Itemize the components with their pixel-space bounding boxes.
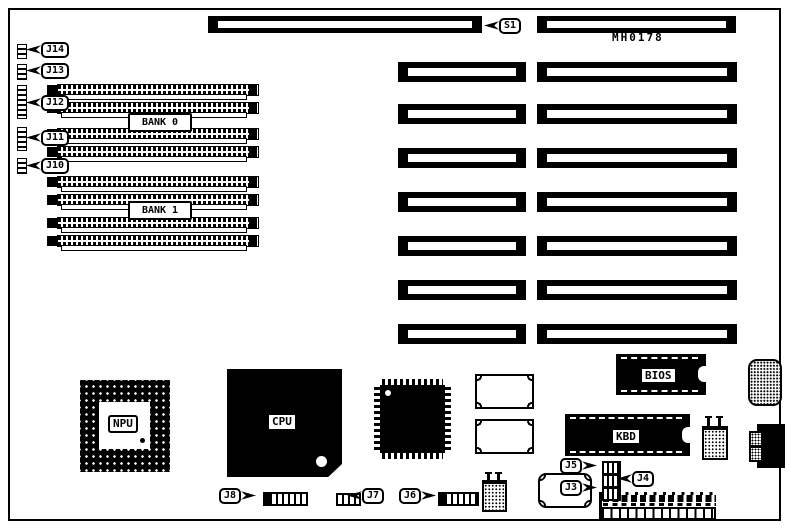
simm-body <box>61 156 247 162</box>
kbd-label: KBD <box>611 428 641 445</box>
qfp-pin1-dot <box>385 390 391 396</box>
isa-slot <box>537 148 737 168</box>
bios-label: BIOS <box>640 367 677 384</box>
callout-arrow-icon <box>347 491 362 501</box>
simm-socket <box>45 84 273 100</box>
slot-stripe <box>547 286 727 294</box>
callout-j14: J14 <box>26 41 69 58</box>
callout-j7: J7 <box>347 487 384 504</box>
bank0-label: BANK 0 <box>128 113 192 132</box>
callout-arrow-icon <box>421 491 436 501</box>
slot-stripe <box>547 154 727 162</box>
kbd-notch <box>682 427 690 443</box>
simm-body <box>61 186 247 192</box>
slot-stripe <box>547 330 727 338</box>
callout-j8: J8 <box>219 487 256 504</box>
isa-slot <box>537 104 737 124</box>
qfp-pins-right <box>445 387 451 451</box>
npu-label: NPU <box>108 415 138 433</box>
power-connector-cells <box>602 507 716 520</box>
slot-stripe <box>547 21 726 28</box>
callout-label: J6 <box>399 488 421 504</box>
slot-stripe <box>408 286 516 294</box>
crystal-1 <box>482 480 507 512</box>
simm-socket <box>45 235 273 251</box>
bios-notch <box>698 366 706 382</box>
jumper-strip-j8 <box>263 492 308 506</box>
isa-slot <box>537 324 737 344</box>
npu-pin1-dot <box>140 438 145 443</box>
npu-socket: NPU <box>80 380 170 472</box>
slot-stripe <box>218 21 472 28</box>
edge-connector-pin <box>749 431 763 447</box>
callout-j13: J13 <box>26 62 69 79</box>
slot-stripe <box>547 68 727 76</box>
isa-slot <box>537 192 737 212</box>
slot-stripe <box>408 198 516 206</box>
callout-j6: J6 <box>399 487 436 504</box>
simm-socket <box>45 146 273 162</box>
kbd-chip: KBD <box>565 414 690 456</box>
simm-body <box>61 94 247 100</box>
simm-body <box>61 138 247 144</box>
callout-label: J11 <box>41 130 69 146</box>
callout-j4: J4 <box>617 470 654 487</box>
callout-arrow-icon <box>26 66 41 76</box>
callout-arrow-icon <box>26 161 41 171</box>
callout-j11: J11 <box>26 129 69 146</box>
isa-slot <box>398 324 526 344</box>
memory-expansion-slot-s1 <box>208 16 482 33</box>
qfp-body <box>380 385 445 453</box>
callout-s1: S1 <box>484 17 521 34</box>
oscillator-2 <box>475 419 534 454</box>
callout-label: J4 <box>632 471 654 487</box>
callout-arrow-icon <box>582 483 597 493</box>
isa-slot <box>398 192 526 212</box>
isa-slot <box>398 236 526 256</box>
callout-label: J7 <box>362 488 384 504</box>
din-connector <box>748 359 782 406</box>
slot-stripe <box>408 330 516 338</box>
callout-j10: J10 <box>26 157 69 174</box>
edge-connector-pin <box>749 446 763 462</box>
callout-arrow-icon <box>241 491 256 501</box>
cpu-pin1-dot <box>316 456 327 467</box>
cpu-label: CPU <box>267 413 297 431</box>
simm-socket <box>45 176 273 192</box>
callout-label: J8 <box>219 488 241 504</box>
callout-arrow-icon <box>484 21 499 31</box>
qfp-pins-bottom <box>382 453 443 459</box>
isa-slot <box>398 62 526 82</box>
isa-slot <box>398 280 526 300</box>
simm-body <box>61 227 247 233</box>
callout-label: J14 <box>41 42 69 58</box>
callout-label: J10 <box>41 158 69 174</box>
callout-arrow-icon <box>26 98 41 108</box>
motherboard-diagram: MH0178 S1 J14 J13 J12 J11 <box>0 0 791 529</box>
isa-slot <box>398 148 526 168</box>
callout-j3: J3 <box>560 479 597 496</box>
bios-chip: BIOS <box>616 354 706 395</box>
callout-label: J5 <box>560 458 582 474</box>
slot-stripe <box>547 110 727 118</box>
crystal-2 <box>702 426 728 460</box>
isa-slot <box>537 280 737 300</box>
callout-label: J3 <box>560 480 582 496</box>
isa-slot <box>398 104 526 124</box>
slot-stripe <box>408 68 516 76</box>
slot-stripe <box>408 242 516 250</box>
callout-arrow-icon <box>617 474 632 484</box>
callout-label: J13 <box>41 63 69 79</box>
callout-label: S1 <box>499 18 521 34</box>
npu-center: NPU <box>99 402 150 449</box>
slot-stripe <box>547 242 727 250</box>
callout-arrow-icon <box>582 461 597 471</box>
bank1-label: BANK 1 <box>128 201 192 220</box>
crystal-leg <box>707 416 710 426</box>
slot-stripe <box>547 198 727 206</box>
isa-slot <box>537 236 737 256</box>
qfp-chip <box>374 379 451 459</box>
jumper-block-j3 <box>602 487 621 501</box>
simm-body <box>61 245 247 251</box>
isa-slot <box>537 62 737 82</box>
cpu-chip: CPU <box>227 369 342 477</box>
power-connector-contacts <box>603 503 716 506</box>
callout-label: J12 <box>41 95 69 111</box>
crystal-leg <box>718 416 721 426</box>
oscillator-1 <box>475 374 534 409</box>
callout-arrow-icon <box>26 45 41 55</box>
callout-j5: J5 <box>560 457 597 474</box>
callout-arrow-icon <box>26 133 41 143</box>
slot-stripe <box>408 110 516 118</box>
slot-stripe <box>408 154 516 162</box>
isa-slot <box>537 16 736 33</box>
jumper-strip-j6 <box>438 492 479 506</box>
callout-j12: J12 <box>26 94 69 111</box>
